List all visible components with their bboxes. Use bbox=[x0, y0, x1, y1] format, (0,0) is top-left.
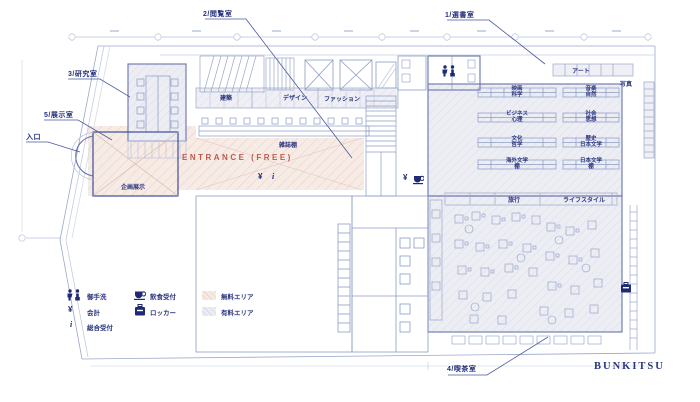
shelf-lifestyle: ライフスタイル bbox=[558, 195, 610, 204]
entrance-free-label: ENTRANCE (FREE) bbox=[182, 153, 293, 162]
legend-reception: 総合受付 bbox=[87, 322, 113, 332]
shelf-photo: 写真 bbox=[616, 79, 636, 88]
label-exhibition-room: 5/展示室 bbox=[44, 110, 73, 120]
shelf-pair-3: ビジネス心理 bbox=[492, 111, 542, 123]
yen-icon: ¥ bbox=[258, 173, 262, 181]
shelf-pair-1: 映画科学 bbox=[492, 86, 542, 98]
center-stair bbox=[366, 96, 396, 196]
shelf-travel: 旅行 bbox=[500, 195, 528, 204]
shelf-pair-7: 海外文学棚 bbox=[492, 158, 542, 170]
label-cafe-room: 4/喫茶室 bbox=[447, 364, 476, 374]
label-planned-exhibition: 企画展示 bbox=[105, 182, 161, 191]
legend-food: 飲食受付 bbox=[150, 291, 176, 301]
free-area-swatch bbox=[202, 291, 216, 300]
elevator-shafts bbox=[305, 60, 396, 90]
legend-cashier: 会計 bbox=[87, 307, 100, 317]
info-icon: i bbox=[70, 321, 72, 329]
cafe-bench-row bbox=[428, 332, 622, 344]
legend-paid-area: 有料エリア bbox=[221, 307, 254, 317]
label-magazine-shelf: 雑誌棚 bbox=[270, 140, 306, 149]
floor-plan: 2/閲覧室 1/選書室 3/研究室 5/展示室 入口 4/喫茶室 建築 デザイン… bbox=[0, 0, 700, 402]
shelf-art: アート bbox=[566, 66, 596, 75]
label-entrance: 入口 bbox=[26, 132, 41, 142]
info-icon: i bbox=[272, 173, 274, 181]
yen-icon: ¥ bbox=[68, 306, 72, 314]
shelf-fashion: ファッション bbox=[318, 94, 366, 103]
legend-restroom: 御手洗 bbox=[87, 291, 107, 301]
shelf-design: デザイン bbox=[275, 93, 315, 102]
yen-icon: ¥ bbox=[403, 174, 407, 182]
label-reading-room: 2/閲覧室 bbox=[203, 9, 232, 19]
shelf-architecture: 建築 bbox=[211, 93, 241, 102]
shelf-pair-6: 歴史日本文学 bbox=[566, 136, 616, 148]
legend-free-area: 無料エリア bbox=[221, 291, 254, 301]
label-research-room: 3/研究室 bbox=[68, 69, 97, 79]
shelf-pair-2: 音楽自然 bbox=[566, 86, 616, 98]
right-band bbox=[630, 205, 637, 350]
middle-rooms bbox=[196, 196, 428, 352]
label-selection-room: 1/選書室 bbox=[445, 10, 474, 20]
legend-locker: ロッカー bbox=[150, 307, 176, 317]
magazine-table bbox=[199, 118, 369, 136]
paid-area-swatch bbox=[202, 307, 216, 316]
shelf-pair-8: 日本文学棚 bbox=[566, 158, 616, 170]
brand-name: BUNKITSU bbox=[594, 361, 665, 372]
stairs-top bbox=[200, 56, 294, 92]
shelf-pair-4: 社会思想 bbox=[566, 111, 616, 123]
shelf-pair-5: 文化哲学 bbox=[492, 136, 542, 148]
